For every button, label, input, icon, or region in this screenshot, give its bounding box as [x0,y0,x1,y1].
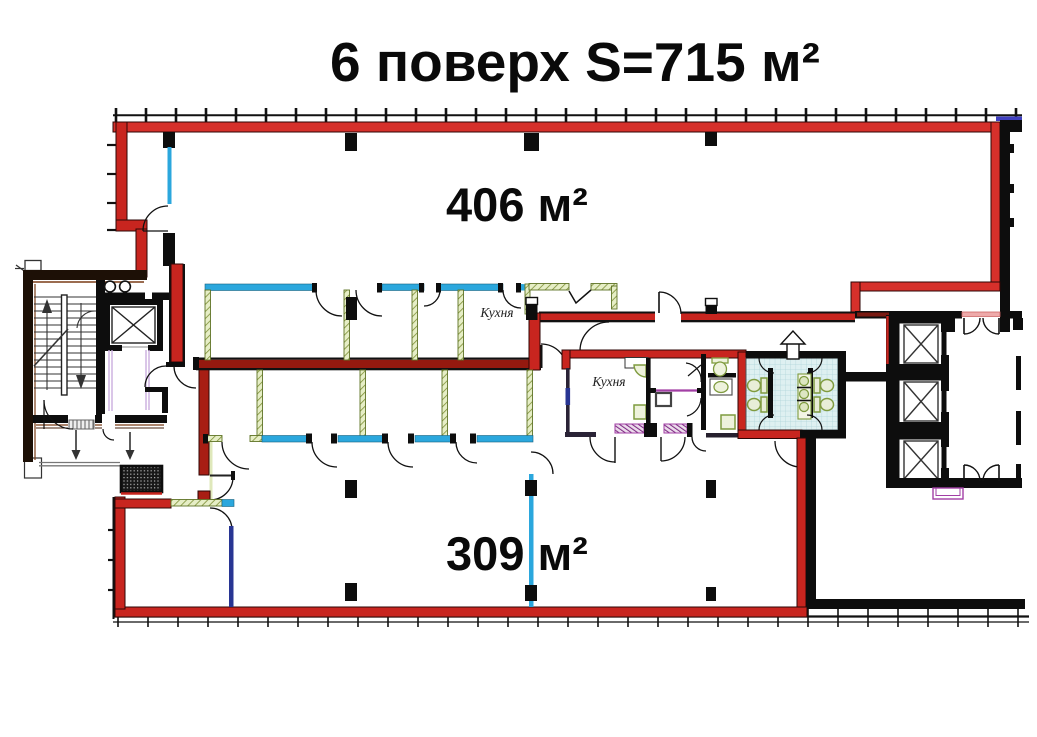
svg-text:309 м²: 309 м² [446,527,588,580]
svg-text:Кухня: Кухня [591,374,625,389]
svg-text:6 поверх S=715 м²: 6 поверх S=715 м² [330,31,820,93]
svg-text:406 м²: 406 м² [446,178,588,231]
svg-text:Кухня: Кухня [479,305,513,320]
